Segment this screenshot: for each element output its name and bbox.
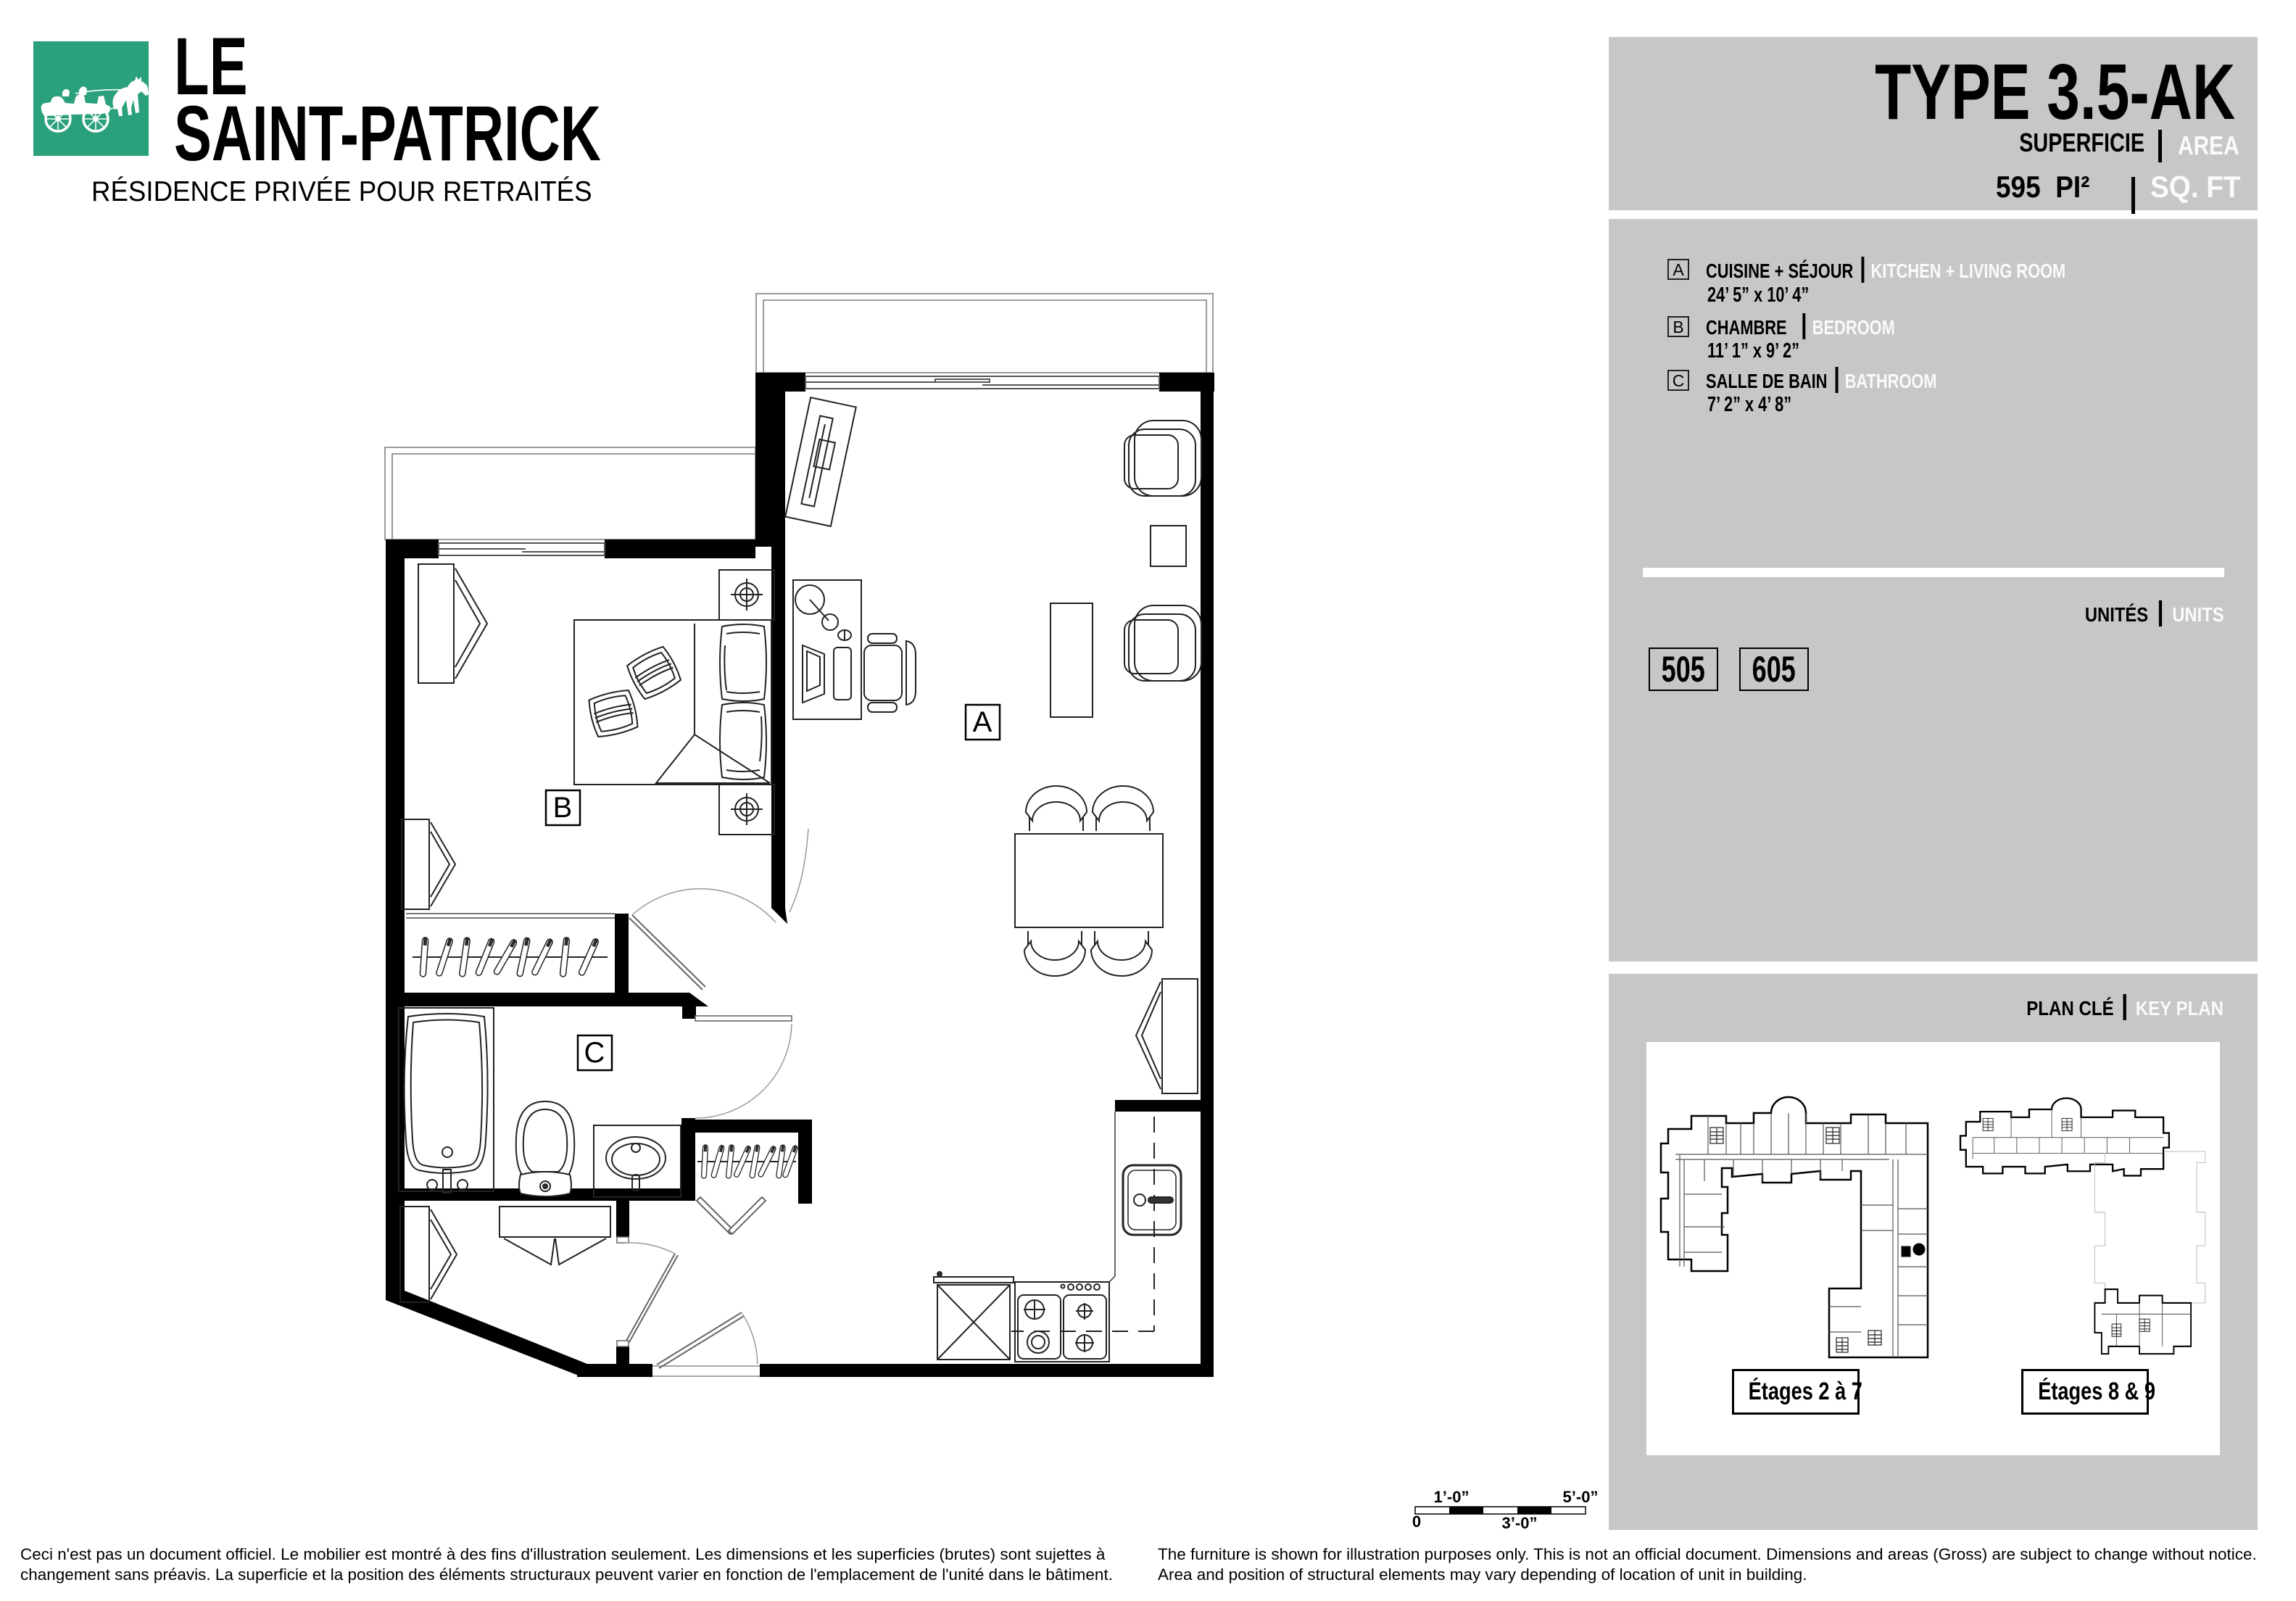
svg-text:B: B — [553, 792, 573, 824]
svg-text:5’-0”: 5’-0” — [1563, 1488, 1599, 1506]
svg-text:A: A — [973, 706, 992, 738]
svg-text:1’-0”: 1’-0” — [1434, 1488, 1470, 1506]
svg-text:C: C — [584, 1037, 605, 1069]
svg-text:3’-0”: 3’-0” — [1502, 1514, 1538, 1532]
svg-text:0: 0 — [1412, 1513, 1421, 1531]
